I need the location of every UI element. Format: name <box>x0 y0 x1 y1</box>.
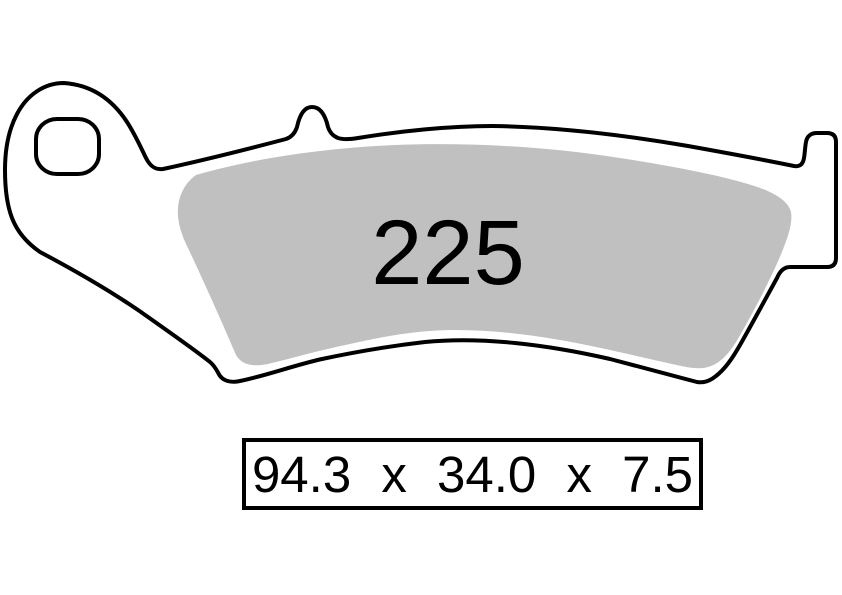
pad-compound-number: 225 <box>371 202 525 304</box>
mounting-hole <box>36 119 99 174</box>
brake-pad-diagram: 225 94.3 x 34.0 x 7.5 <box>0 0 842 595</box>
dimensions-text: 94.3 x 34.0 x 7.5 <box>252 449 693 500</box>
dimensions-box: 94.3 x 34.0 x 7.5 <box>242 438 703 510</box>
